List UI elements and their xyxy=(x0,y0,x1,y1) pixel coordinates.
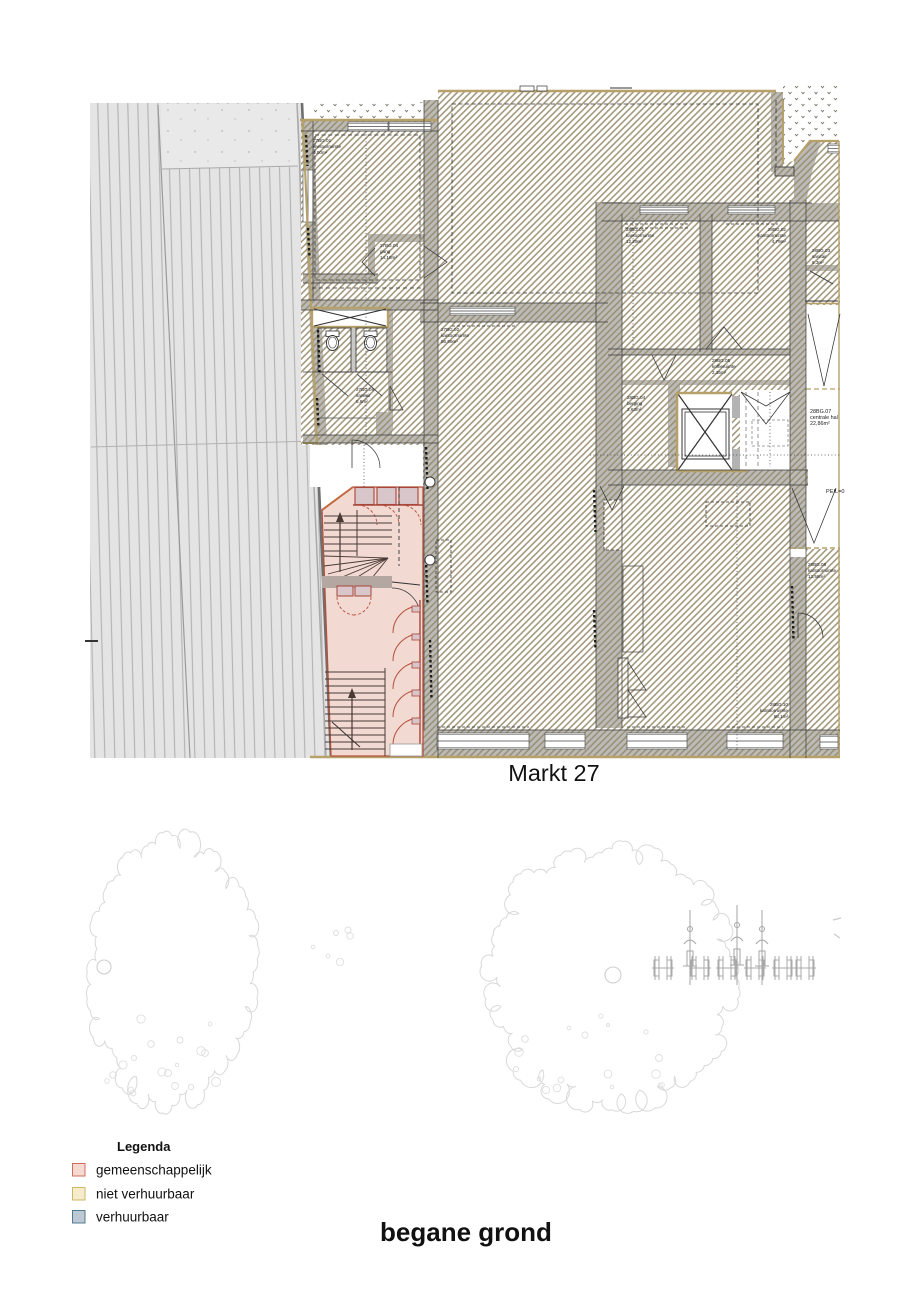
svg-text:28BG.02: 28BG.02 xyxy=(768,227,787,232)
svg-text:4,00m²: 4,00m² xyxy=(313,150,328,155)
svg-text:4,79m²: 4,79m² xyxy=(772,239,787,244)
svg-text:niet verhuurbaar: niet verhuurbaar xyxy=(96,1187,195,1202)
svg-text:28BG.04: 28BG.04 xyxy=(627,395,646,400)
svg-text:gang: gang xyxy=(380,249,391,254)
svg-text:28BG.08: 28BG.08 xyxy=(808,562,827,567)
svg-text:27BG.06: 27BG.06 xyxy=(356,387,375,392)
svg-text:28BG.01: 28BG.01 xyxy=(626,227,645,232)
svg-text:2,35m²: 2,35m² xyxy=(712,370,727,375)
svg-text:kantoorruimte: kantoorruimte xyxy=(313,144,342,149)
svg-text:berging: berging xyxy=(627,401,643,406)
svg-text:verhuurbaar: verhuurbaar xyxy=(96,1210,169,1225)
svg-text:5,3m²: 5,3m² xyxy=(812,260,824,265)
svg-text:sanitair: sanitair xyxy=(356,393,371,398)
svg-text:28BG.05: 28BG.05 xyxy=(712,358,731,363)
svg-text:kantoorruimte: kantoorruimte xyxy=(758,233,787,238)
svg-text:kantoorruimte: kantoorruimte xyxy=(441,333,470,338)
svg-text:28BG.03: 28BG.03 xyxy=(812,248,831,253)
svg-text:28BG.10: 28BG.10 xyxy=(770,702,789,707)
svg-text:sanitair: sanitair xyxy=(812,254,827,259)
svg-text:58,1m²: 58,1m² xyxy=(774,714,789,719)
svg-text:koffieruimte: koffieruimte xyxy=(712,364,736,369)
svg-text:2,63m²: 2,63m² xyxy=(627,407,642,412)
svg-text:22,86m²: 22,86m² xyxy=(810,421,830,427)
svg-text:5,8m²: 5,8m² xyxy=(356,399,368,404)
svg-text:PEIL=0: PEIL=0 xyxy=(826,489,845,495)
svg-text:12,29m²: 12,29m² xyxy=(626,239,643,244)
svg-text:27BG.01: 27BG.01 xyxy=(313,138,332,143)
svg-text:kantoorruimte: kantoorruimte xyxy=(808,568,837,573)
svg-text:Markt 27: Markt 27 xyxy=(508,760,599,786)
svg-text:14,18m²: 14,18m² xyxy=(380,255,397,260)
svg-text:gemeenschappelijk: gemeenschappelijk xyxy=(96,1163,212,1178)
svg-text:27BG.02: 27BG.02 xyxy=(441,327,460,332)
svg-text:begane grond: begane grond xyxy=(380,1217,552,1247)
svg-text:27BG.04: 27BG.04 xyxy=(380,243,399,248)
svg-text:kantoorruimte: kantoorruimte xyxy=(760,708,789,713)
svg-text:12,58m²: 12,58m² xyxy=(808,574,825,579)
svg-text:56,69m²: 56,69m² xyxy=(441,339,458,344)
svg-text:kantoorruimte: kantoorruimte xyxy=(626,233,655,238)
svg-text:Legenda: Legenda xyxy=(117,1139,171,1154)
